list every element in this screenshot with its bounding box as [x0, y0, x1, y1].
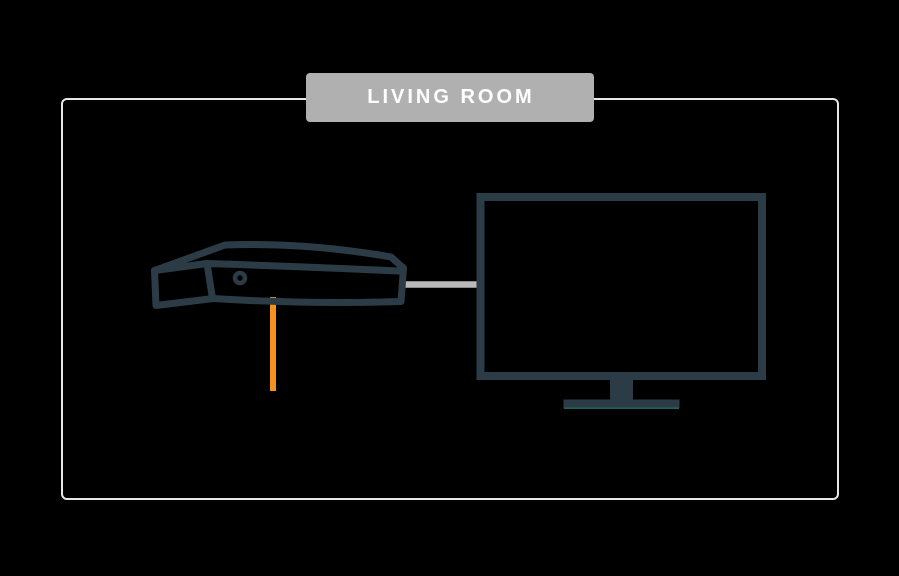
room-label: LIVING ROOM	[306, 73, 594, 122]
diagram-stage: LIVING ROOM	[0, 0, 899, 576]
room-label-text: LIVING ROOM	[364, 86, 534, 109]
stb-panel-edges	[155, 264, 400, 299]
tv-stand-neck	[610, 378, 633, 401]
set-top-box-icon	[155, 245, 404, 306]
stb-body-outline	[155, 245, 404, 306]
tv-screen-frame	[481, 197, 763, 376]
stb-indicator-light-icon	[235, 273, 245, 283]
tv-icon	[481, 197, 763, 408]
tv-stand-base	[564, 400, 680, 409]
